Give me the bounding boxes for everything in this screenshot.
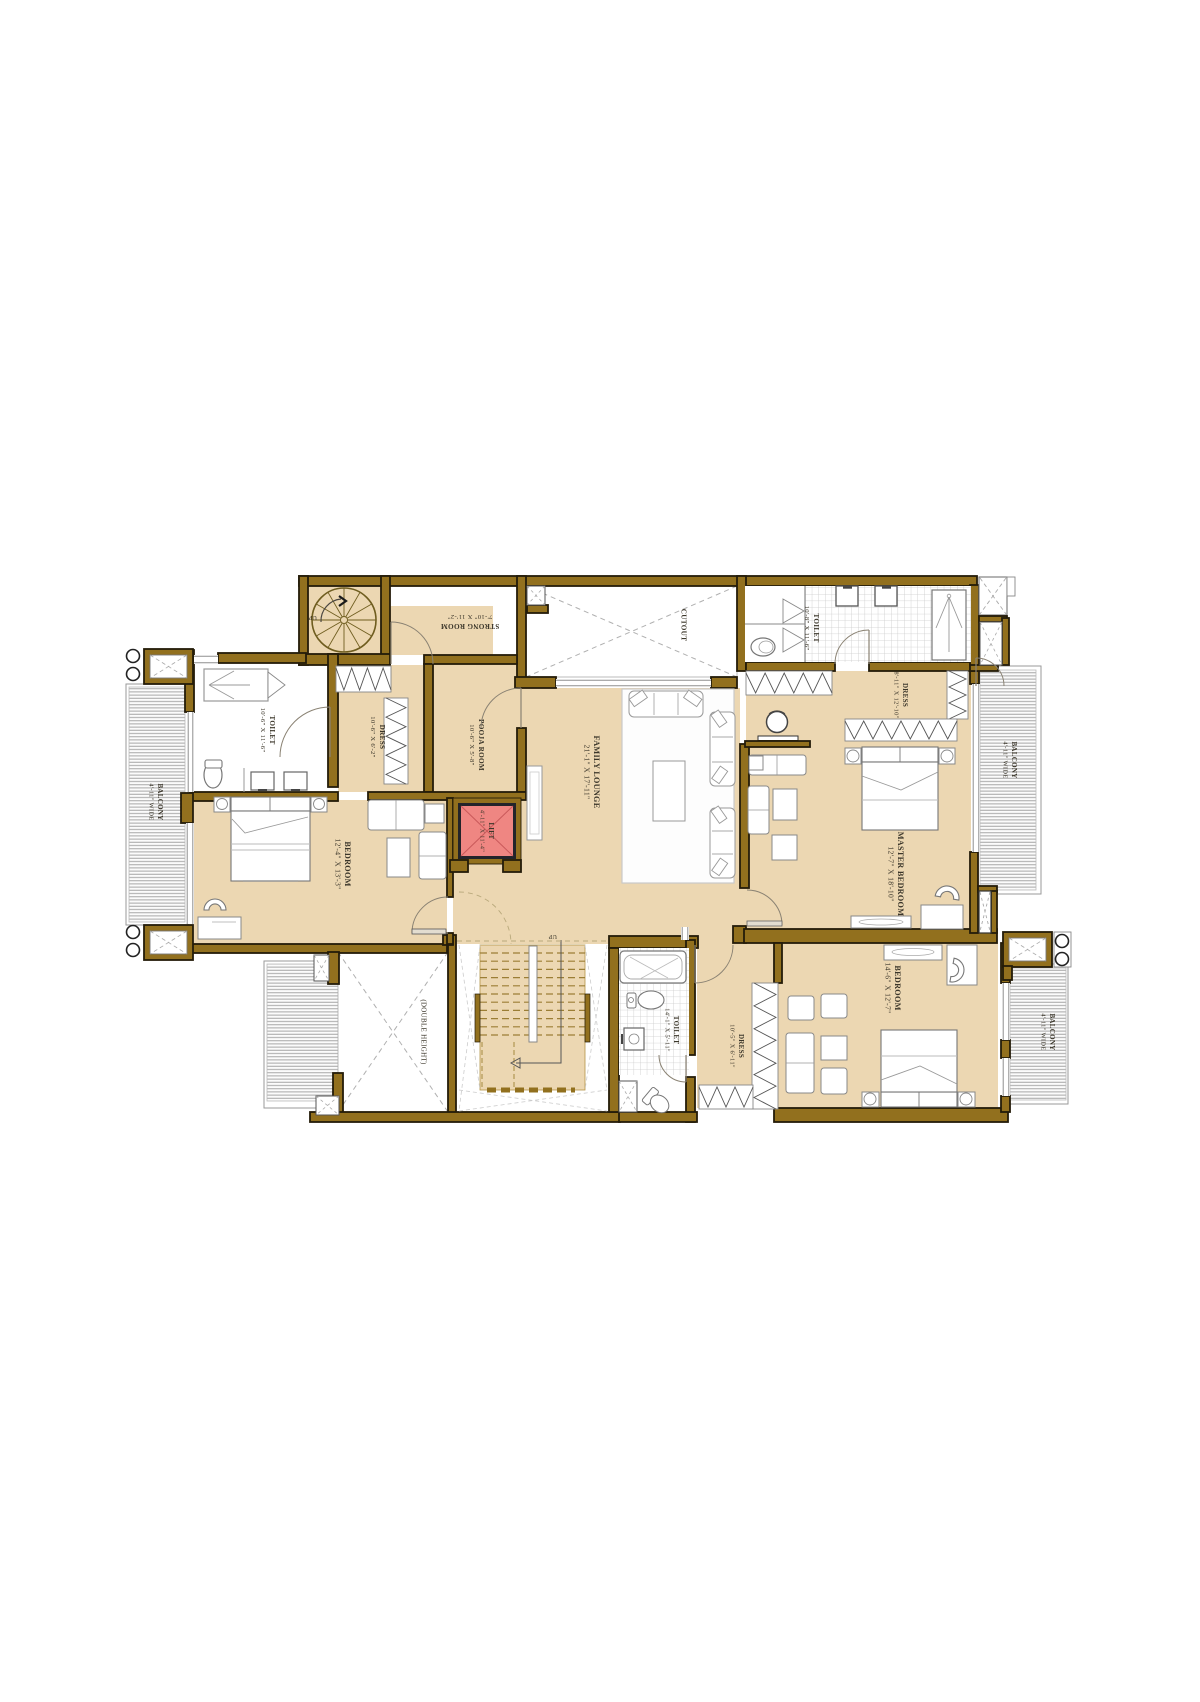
svg-text:FAMILY LOUNGE: FAMILY LOUNGE	[592, 736, 601, 809]
svg-text:12'-7" X 18'-10": 12'-7" X 18'-10"	[886, 846, 895, 901]
svg-text:TOILET: TOILET	[812, 613, 820, 642]
svg-text:4'-11" WIDE: 4'-11" WIDE	[1001, 741, 1008, 778]
svg-text:LIFT: LIFT	[487, 822, 494, 839]
svg-text:(DOUBLE HEIGHT): (DOUBLE HEIGHT)	[420, 999, 428, 1065]
svg-text:7'-10" X 11'-2": 7'-10" X 11'-2"	[448, 613, 493, 620]
svg-text:10'-8" X 11'-6": 10'-8" X 11'-6"	[803, 606, 810, 651]
svg-text:MASTER BEDROOM: MASTER BEDROOM	[896, 832, 905, 917]
svg-text:8'-11" X 12'-10": 8'-11" X 12'-10"	[892, 671, 899, 718]
svg-text:UP: UP	[308, 614, 317, 621]
svg-text:UP: UP	[548, 933, 557, 940]
svg-text:10'-6" X 11'-6": 10'-6" X 11'-6"	[259, 708, 266, 753]
svg-text:10'-5" X 6'-11": 10'-5" X 6'-11"	[728, 1024, 735, 1068]
svg-text:DRESS: DRESS	[378, 725, 386, 750]
svg-text:4'-11" WIDE: 4'-11" WIDE	[1039, 1013, 1046, 1050]
svg-text:STRONG ROOM: STRONG ROOM	[441, 622, 500, 630]
svg-text:BALCONY: BALCONY	[1048, 1013, 1056, 1050]
svg-text:DRESS: DRESS	[737, 1034, 745, 1058]
svg-text:BALCONY: BALCONY	[1010, 741, 1018, 778]
svg-text:14'-1" X 5'-11": 14'-1" X 5'-11"	[663, 1008, 670, 1052]
svg-text:10'-6" X 6'-2": 10'-6" X 6'-2"	[369, 716, 376, 757]
svg-text:BEDROOM: BEDROOM	[343, 841, 352, 886]
svg-text:TOILET: TOILET	[672, 1016, 680, 1045]
svg-text:BALCONY: BALCONY	[156, 783, 164, 820]
svg-text:BEDROOM: BEDROOM	[893, 965, 902, 1010]
svg-text:10'-6" X 5'-8": 10'-6" X 5'-8"	[468, 724, 475, 765]
svg-text:12'-4" X 13'-3": 12'-4" X 13'-3"	[333, 838, 342, 889]
svg-text:21'-1" X 17'-11": 21'-1" X 17'-11"	[582, 745, 591, 800]
svg-text:14'-6" X 12'-7": 14'-6" X 12'-7"	[883, 962, 892, 1013]
svg-text:DRESS: DRESS	[901, 683, 909, 707]
svg-text:CUTOUT: CUTOUT	[679, 609, 687, 641]
svg-text:TOILET: TOILET	[268, 715, 276, 744]
svg-text:4'-11" X 11'-4": 4'-11" X 11'-4"	[478, 810, 485, 852]
svg-text:4'-11" WIDE: 4'-11" WIDE	[147, 783, 154, 820]
